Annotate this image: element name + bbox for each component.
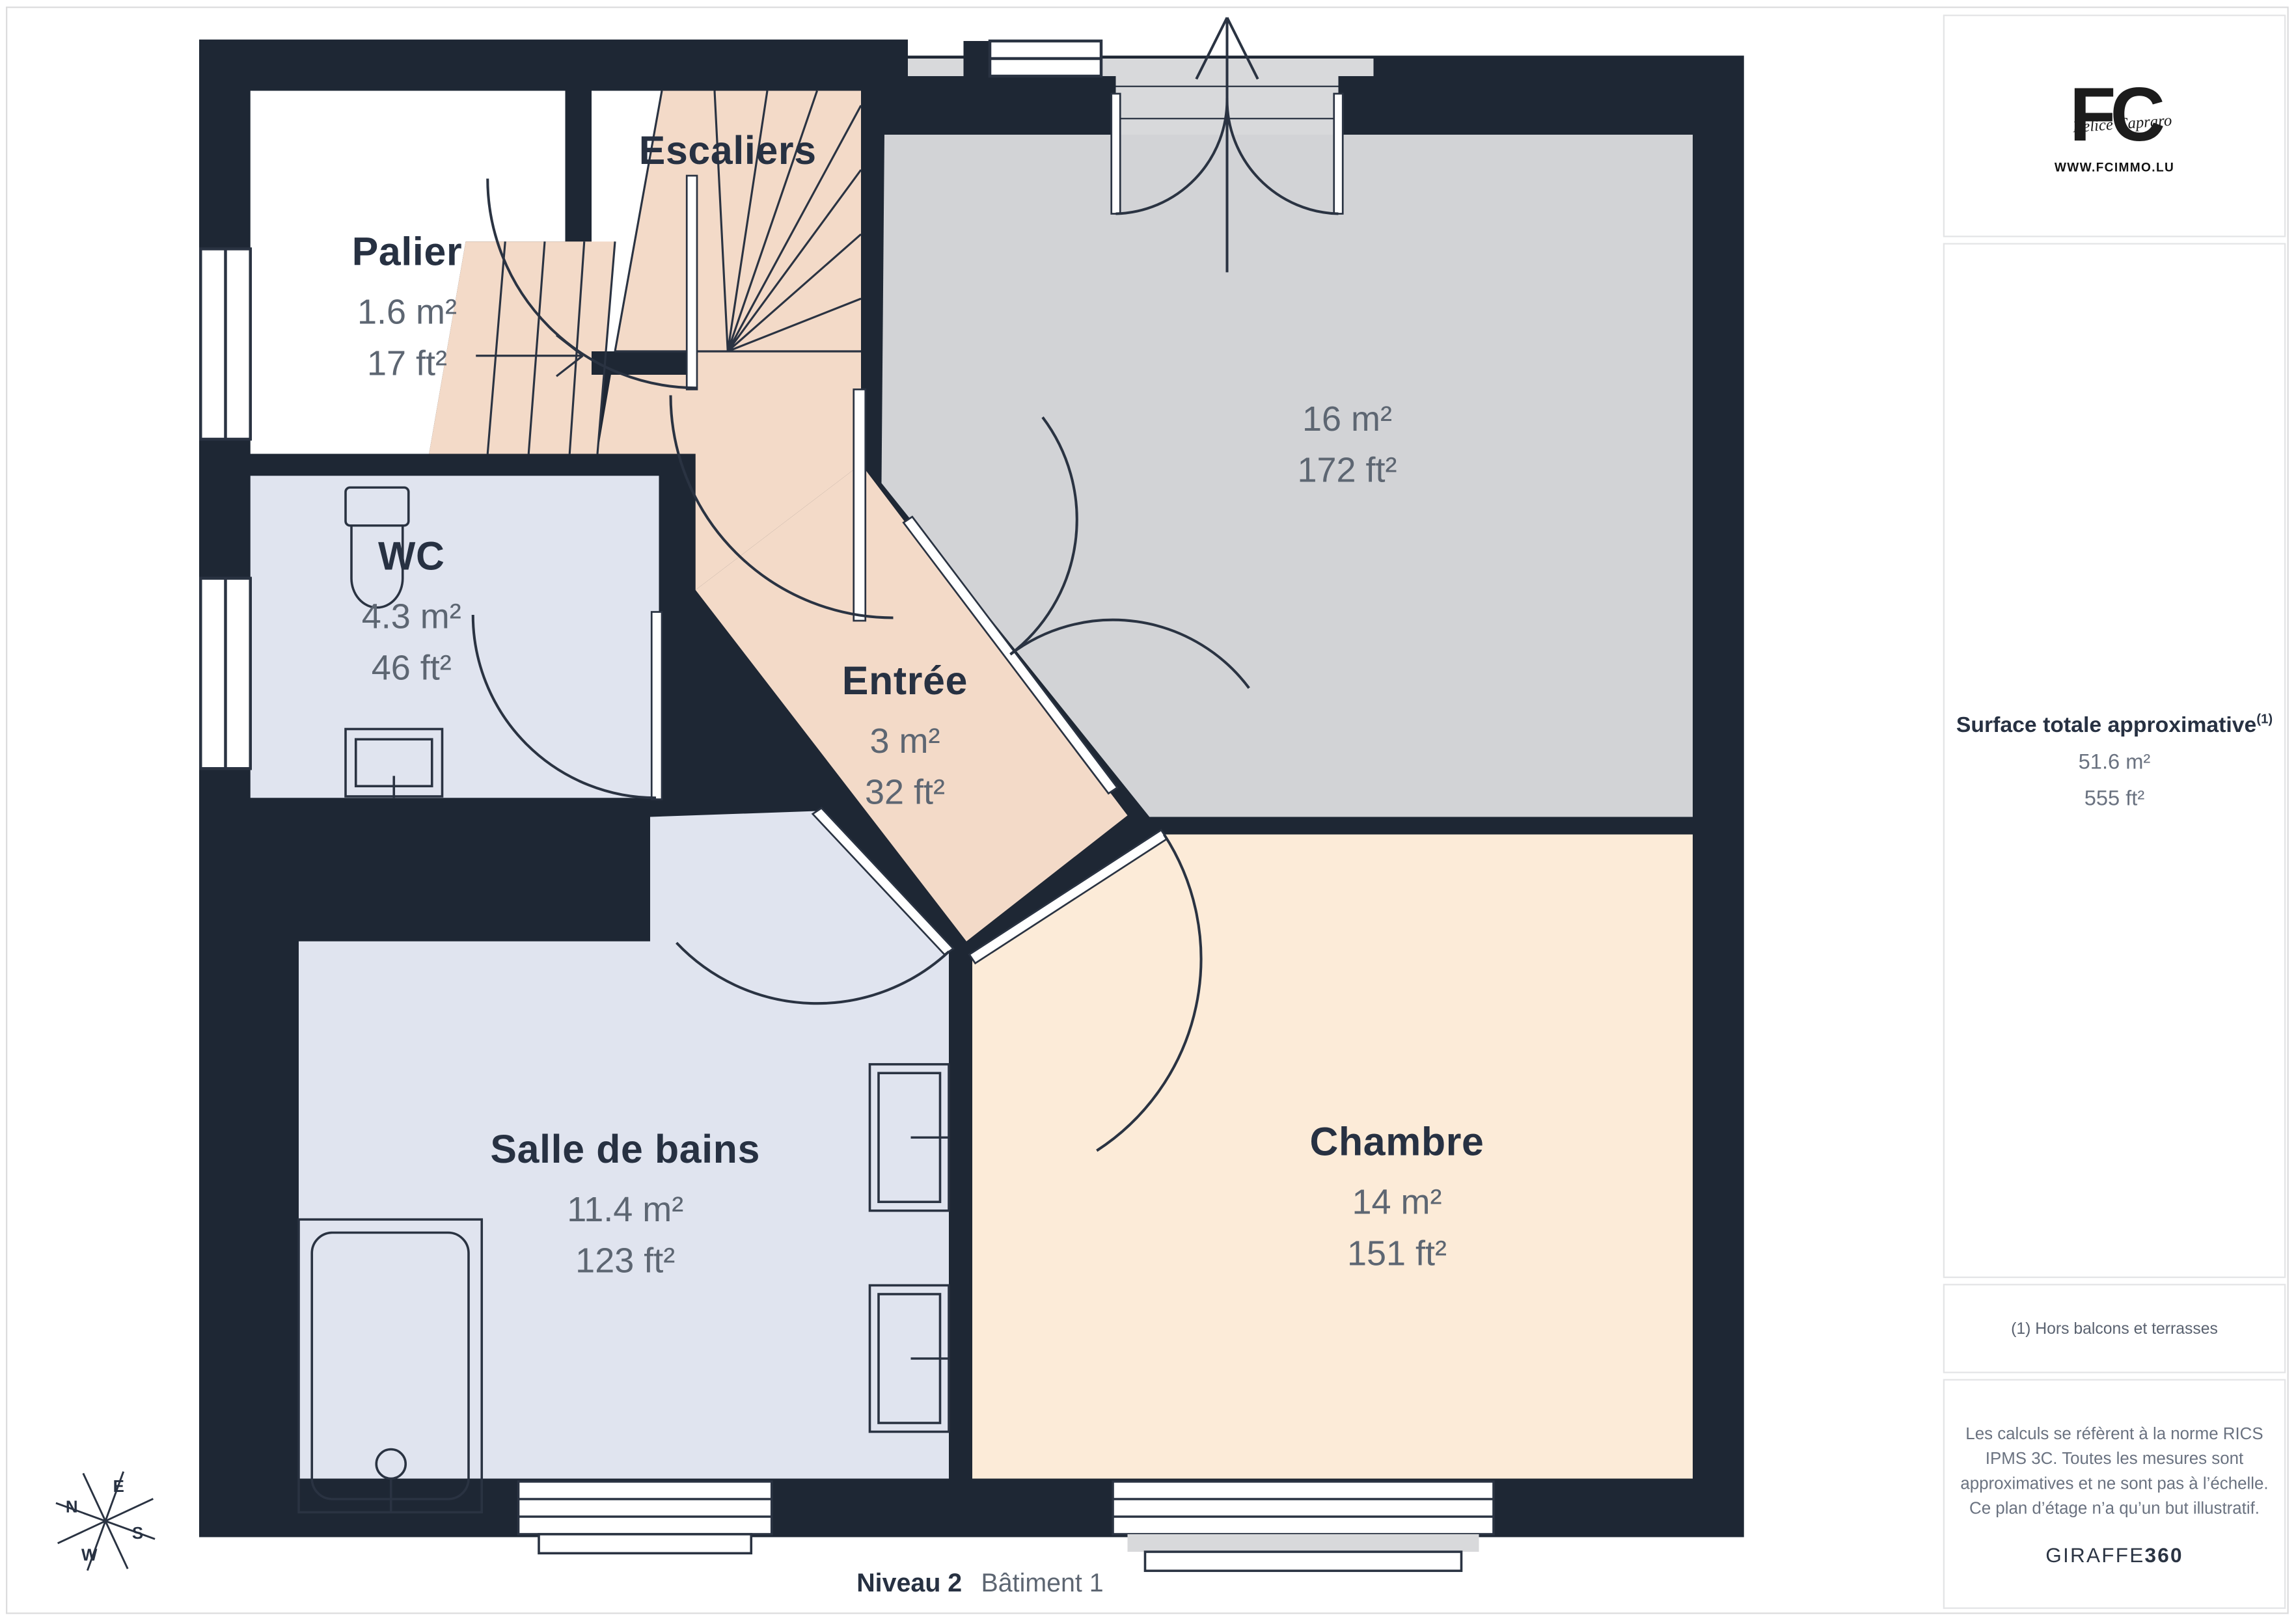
wall-stub-window bbox=[964, 41, 991, 76]
floor-level: Niveau 2 bbox=[856, 1568, 962, 1599]
info-sidebar: FC Felice Capraro WWW.FCIMMO.LU Surface … bbox=[1943, 15, 2286, 1615]
compass-n: N bbox=[66, 1499, 78, 1517]
surface-footnote-ref: (1) bbox=[2256, 710, 2273, 725]
legal-text: Les calculs se réfèrent à la norme RICS … bbox=[1960, 1422, 2270, 1523]
compass-e: E bbox=[113, 1479, 124, 1496]
footnote-text: (1) Hors balcons et terrasses bbox=[2011, 1319, 2218, 1337]
surface-ft2: 555 ft² bbox=[2084, 787, 2144, 810]
floorplan-sheet: Palier 1.6 m² 17 ft² Escaliers WC 4.3 m²… bbox=[0, 0, 2296, 1623]
window-bath bbox=[519, 1482, 772, 1553]
agency-logo: FC Felice Capraro WWW.FCIMMO.LU bbox=[2027, 77, 2202, 174]
legal-card: Les calculs se réfèrent à la norme RICS … bbox=[1943, 1379, 2286, 1609]
wall-top-right-of-door bbox=[1339, 76, 1374, 135]
window-balcony bbox=[990, 41, 1101, 76]
room-wc bbox=[251, 476, 659, 798]
surface-m2: 51.6 m² bbox=[2079, 750, 2151, 774]
giraffe360-brand: GIRAFFE360 bbox=[2045, 1542, 2183, 1565]
brand-suffix: 360 bbox=[2144, 1542, 2183, 1565]
compass-w: W bbox=[81, 1547, 97, 1565]
logo-card: FC Felice Capraro WWW.FCIMMO.LU bbox=[1943, 15, 2286, 237]
building-name: Bâtiment 1 bbox=[981, 1568, 1103, 1599]
surface-card: Surface totale approximative(1) 51.6 m² … bbox=[1943, 243, 2286, 1279]
compass-icon bbox=[56, 1472, 155, 1571]
wall-top-left-of-door bbox=[908, 76, 1116, 135]
window-left-upper bbox=[200, 249, 251, 440]
window-chambre bbox=[1113, 1482, 1494, 1571]
surface-title: Surface totale approximative(1) bbox=[1956, 710, 2273, 737]
surface-title-text: Surface totale approximative bbox=[1956, 712, 2256, 737]
footnote-card: (1) Hors balcons et terrasses bbox=[1943, 1284, 2286, 1373]
logo-website: WWW.FCIMMO.LU bbox=[2027, 159, 2202, 174]
room-chambre bbox=[972, 835, 1693, 1479]
compass-s: S bbox=[132, 1526, 143, 1543]
brand-name: GIRAFFE bbox=[2045, 1542, 2144, 1565]
floor-caption: Niveau 2 Bâtiment 1 bbox=[856, 1568, 1103, 1599]
window-left-lower bbox=[200, 578, 251, 769]
